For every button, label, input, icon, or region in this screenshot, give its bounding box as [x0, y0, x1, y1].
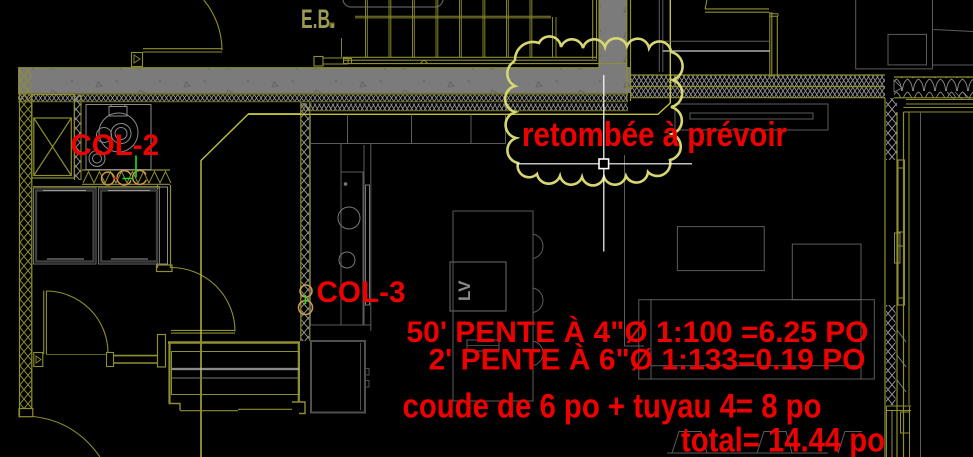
svg-text:retombée à prévoir: retombée à prévoir: [522, 116, 787, 154]
svg-text:coude de 6 po + tuyau 4= 8 po: coude de 6 po + tuyau 4= 8 po: [403, 388, 822, 426]
svg-text:COL-3: COL-3: [317, 276, 406, 309]
svg-text:2' PENTE À 6"Ø 1:133=0.19 PO: 2' PENTE À 6"Ø 1:133=0.19 PO: [429, 343, 866, 377]
svg-text:LV: LV: [455, 280, 474, 301]
svg-text:total= 14.44 po: total= 14.44 po: [681, 422, 885, 457]
svg-text:E.B.: E.B.: [301, 4, 335, 34]
svg-text:COL-2: COL-2: [71, 129, 160, 162]
